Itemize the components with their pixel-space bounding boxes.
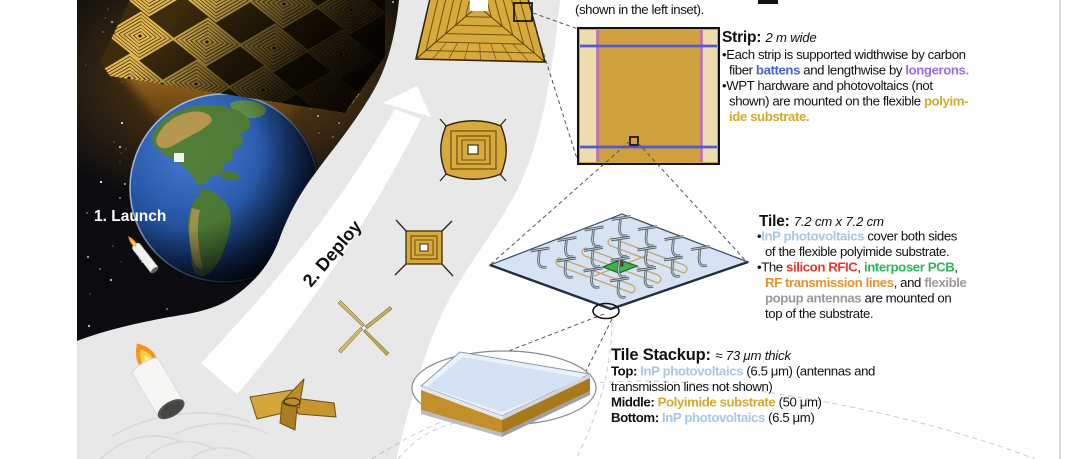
- svg-text:popup antennas are mounted on: popup antennas are mounted on: [765, 291, 951, 306]
- svg-text:ide substrate.: ide substrate.: [729, 109, 809, 124]
- svg-text:shown) are mounted on the flex: shown) are mounted on the flexible polyi…: [729, 94, 968, 109]
- svg-text:Strip: 2 m wide: Strip: 2 m wide: [722, 29, 817, 46]
- svg-text:•The silicon RFIC, interposer: •The silicon RFIC, interposer PCB,: [757, 260, 958, 275]
- svg-text:(shown in the left inset).: (shown in the left inset).: [575, 2, 704, 17]
- svg-text:RF transmission lines, and fle: RF transmission lines, and flexible: [765, 275, 967, 290]
- svg-text:transmission lines not shown): transmission lines not shown): [611, 379, 772, 394]
- svg-text:Top: InP photovoltaics (6.5 μm: Top: InP photovoltaics (6.5 μm) (antenna…: [611, 364, 875, 379]
- svg-text:•InP photovoltaics cover both: •InP photovoltaics cover both sides: [757, 229, 958, 244]
- svg-text:Tile: 7.2 cm x 7.2 cm: Tile: 7.2 cm x 7.2 cm: [759, 213, 884, 230]
- svg-text:fiber battens and lengthwise b: fiber battens and lengthwise by longeron…: [729, 63, 969, 78]
- svg-text:1. Launch: 1. Launch: [94, 208, 166, 225]
- svg-text:•Each strip is supported width: •Each strip is supported widthwise by ca…: [722, 47, 966, 62]
- svg-text:Middle: Polyimide substrate (5: Middle: Polyimide substrate (50 μm): [611, 395, 822, 410]
- svg-text:Bottom: InP photovoltaics (6.5: Bottom: InP photovoltaics (6.5 μm): [611, 410, 814, 425]
- svg-text:of the flexible polyimide subs: of the flexible polyimide substrate.: [765, 244, 949, 259]
- svg-text:Tile Stackup: ≈ 73 μm thick: Tile Stackup: ≈ 73 μm thick: [611, 346, 792, 364]
- svg-text:•WPT hardware and photovoltaic: •WPT hardware and photovoltaics (not: [722, 78, 933, 93]
- svg-text:top of the substrate.: top of the substrate.: [765, 306, 873, 321]
